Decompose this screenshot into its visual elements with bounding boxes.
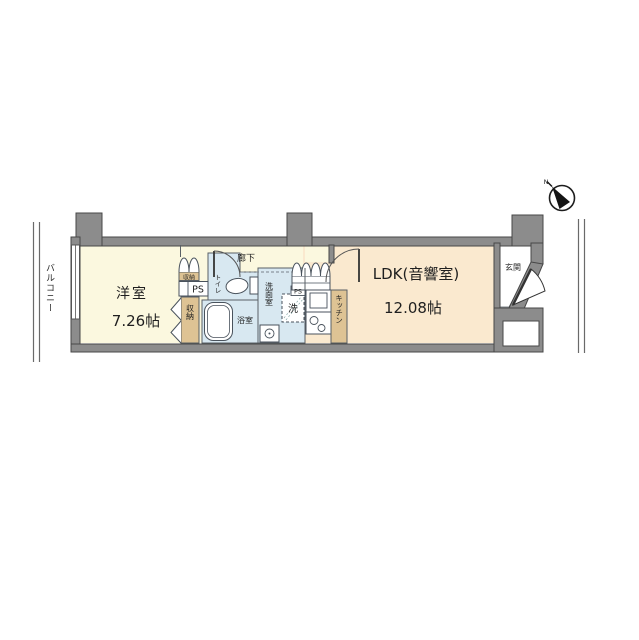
compass-north-label: N bbox=[544, 178, 549, 186]
floorplan-svg: N bbox=[0, 0, 639, 640]
entrance-alcove-notch bbox=[503, 321, 539, 346]
washer-label: 洗 bbox=[288, 303, 298, 315]
wall-pillar-mid bbox=[287, 213, 312, 246]
balcony-label: バルコニー bbox=[44, 263, 55, 313]
washbasin-icon bbox=[260, 325, 279, 342]
wall-ldk-entrance bbox=[494, 243, 500, 311]
western-room-label: 洋室 bbox=[116, 285, 148, 302]
bathtub-icon bbox=[205, 303, 233, 341]
bathroom-label: 浴室 bbox=[237, 315, 253, 325]
storage-label: 収納 bbox=[186, 303, 195, 321]
wall-pillar-right bbox=[512, 215, 543, 246]
floorplan-canvas: N bbox=[0, 0, 639, 640]
kitchen-label: キッチン bbox=[335, 294, 344, 324]
ps-label-1: PS bbox=[192, 285, 204, 296]
window-left bbox=[72, 245, 80, 319]
corridor-strip bbox=[305, 245, 330, 262]
toilet-label: トイレ bbox=[213, 274, 221, 294]
balcony-boundary-lines bbox=[34, 222, 40, 362]
compass-icon: N bbox=[544, 178, 575, 211]
kitchen-counter bbox=[306, 290, 331, 334]
entrance-label: 玄関 bbox=[505, 262, 521, 272]
wall-corridor-ldk bbox=[329, 245, 334, 263]
corridor-label: 廊下 bbox=[237, 252, 255, 264]
washroom-label: 洗面室 bbox=[265, 281, 274, 306]
ldk-size: 12.08帖 bbox=[384, 299, 442, 317]
wall-entrance-right bbox=[531, 243, 543, 264]
ldk-label: LDK(音響室) bbox=[373, 265, 459, 283]
right-boundary-lines bbox=[579, 219, 585, 353]
ps-label-2: PS bbox=[294, 288, 302, 296]
storage-upper-label: 収納 bbox=[183, 274, 195, 282]
western-room-size: 7.26帖 bbox=[112, 312, 160, 330]
wall-bottom bbox=[71, 344, 502, 352]
